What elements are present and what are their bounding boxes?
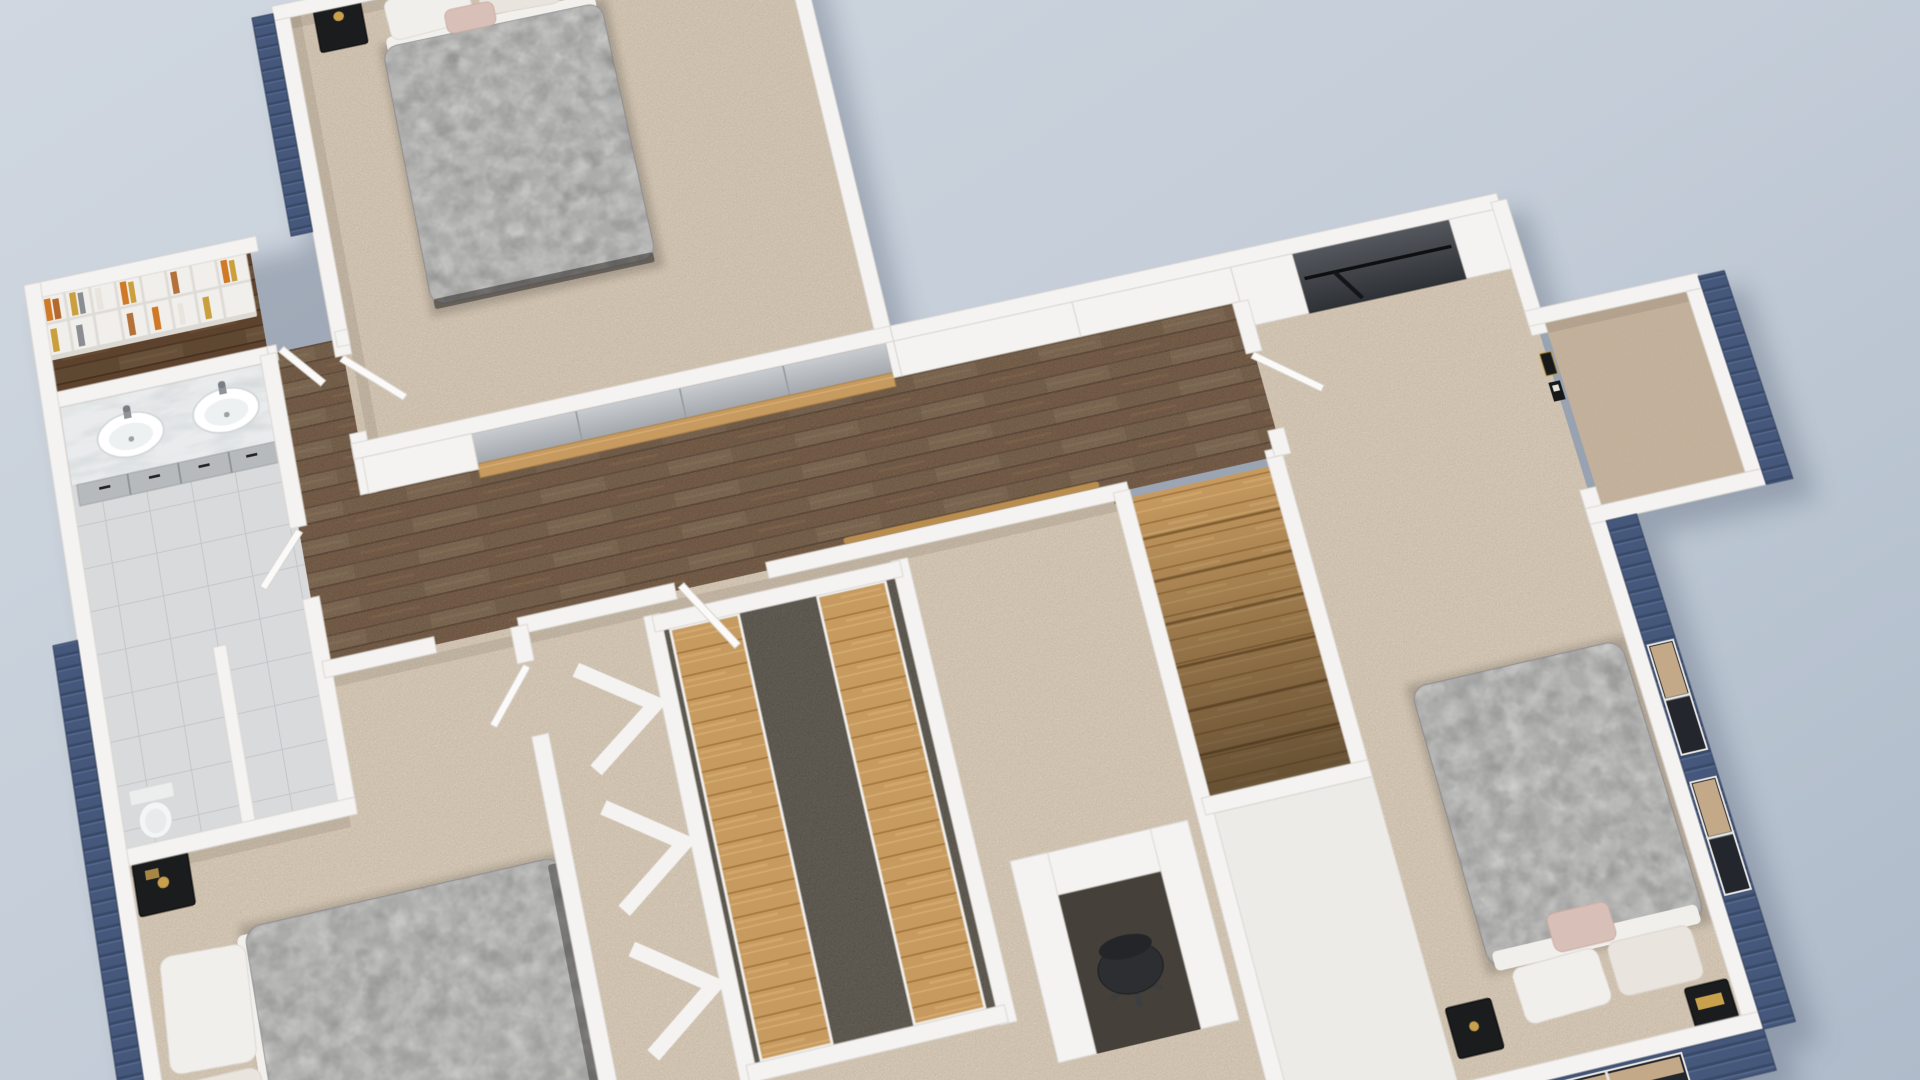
floorplan-svg: [0, 0, 1920, 1080]
pillow: [159, 943, 257, 1076]
floorplan-3d-scene: [0, 0, 1920, 1080]
render-stage: [0, 0, 1920, 1080]
